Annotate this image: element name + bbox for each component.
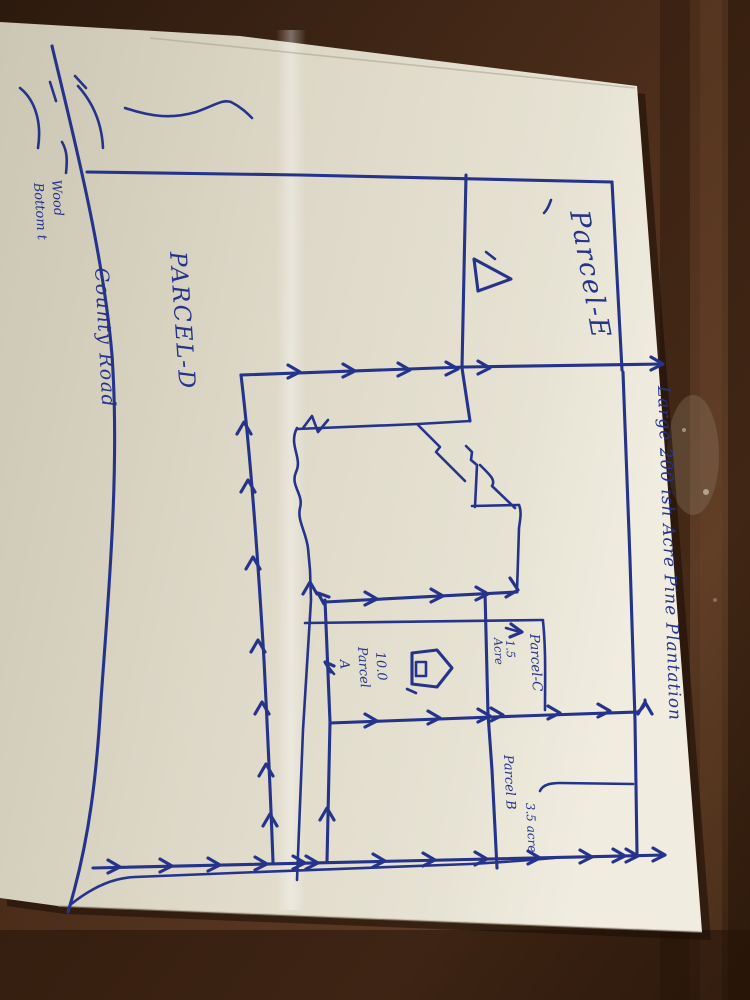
parcel-c-label: Parcel-C [526, 632, 545, 692]
parcel-c-area-line2: Acre [491, 636, 506, 665]
plat-map-sketch: Wood Bottom t County Road PARCEL-D Parce… [0, 0, 750, 1000]
photo-of-hand-drawn-plat-map: Wood Bottom t County Road PARCEL-D Parce… [0, 0, 750, 1000]
paper-sheet [0, 22, 711, 940]
creek-note-line1: Wood [48, 179, 66, 216]
parcel-a-name-line2: A [336, 658, 352, 669]
parcel-a-area-label: 10.0 [372, 651, 389, 681]
parcel-a-name-line1: Parcel [354, 645, 372, 688]
parcel-b-label: Parcel B [500, 753, 518, 810]
parcel-b-area-label: 3.5 acre [523, 802, 540, 852]
